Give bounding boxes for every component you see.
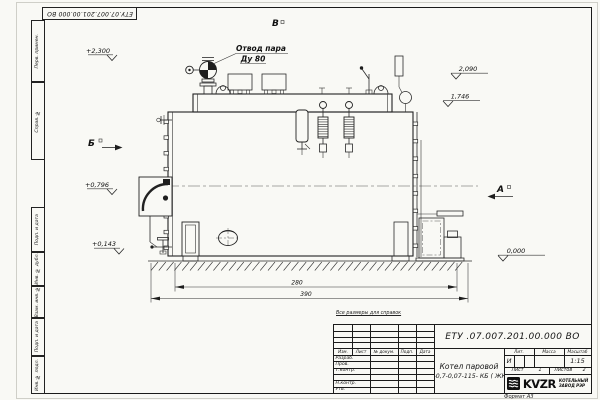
steam-outlet-dn: Ду 80 [240,55,266,64]
elevation-mark-0796: +0,796 [85,181,117,195]
svg-text:+0,796: +0,796 [85,181,109,189]
manhole [216,228,240,248]
tb-header-izm: Изм. [334,348,352,355]
svg-text:А: А [496,185,504,195]
blower-unit [416,211,464,261]
exhaust-stack [395,56,412,112]
tb-sheet-value: 1 [538,368,541,373]
elevation-mark-0143: +0,143 [92,240,124,254]
title-block: ЕТУ .07.007.201.00.000 ВО Изм. Лист № до… [333,324,592,394]
tb-designation: ЕТУ .07.007.201.00.000 ВО [434,325,591,348]
elevation-mark-1746: 1,746 [443,93,480,107]
svg-text:+0,143: +0,143 [92,240,116,248]
tb-sheet-cell: Лист 1 [504,367,549,374]
svg-text:390: 390 [300,291,312,298]
ground-line [148,261,472,271]
kvzr-logo-text: KVZR [523,377,556,391]
drum-hatch-1 [228,74,252,94]
lifting-lug-right [374,86,388,95]
svg-text:В: В [272,19,279,29]
tb-header-doc: № докум. [370,348,398,355]
elevation-mark-2090: 2,090 [451,65,488,79]
svg-text:+2,300: +2,300 [86,47,110,55]
tb-lit-value: И [504,355,514,367]
view-marker-a: А [488,185,514,199]
format-note: Формат А3 [504,394,534,400]
tb-product-name-line1: Котел паровой [440,362,499,371]
kvzr-caption-line2: ЗАВОД РЭР [559,383,585,388]
drum-hatch-2 [262,74,286,94]
view-marker-b: Б [88,139,123,150]
tb-lit-label: Лит. [504,348,534,355]
dimension-390: 390 [151,263,468,303]
dimension-280: 280 [175,263,457,292]
boiler-body [164,112,421,257]
tb-header-date: Дата [416,348,434,355]
tb-header-sign: Подп. [398,348,416,355]
steam-drum [193,94,392,112]
svg-text:Б: Б [88,139,95,149]
elevation-mark-0000: 0,000 [498,247,545,261]
steam-outlet-text: Отвод пара [236,44,286,53]
steam-outlet-label: Отвод пара Ду 80 [213,44,288,64]
tb-row-utv: Утв. [334,387,370,393]
kvzr-logo-caption: КОТЕЛЬНЫЙ ЗАВОД РЭР [559,379,588,389]
kvzr-logo-icon [507,377,520,390]
svg-text:1,746: 1,746 [451,93,470,101]
svg-text:0,000: 0,000 [507,247,526,255]
svg-text:2,090: 2,090 [459,65,478,73]
tb-product-name-line2: Е -0,7-0,07-115- КБ ( ЖК ) [434,373,504,380]
tb-sheet-label: Лист [511,368,523,373]
tb-row-prov: Пров. [334,361,370,367]
lever-safety-valve [360,66,372,94]
tb-sheets-label: Листов [554,368,572,373]
reference-note: Все размеры для справок [336,311,401,316]
support-leg-right [392,222,409,261]
elevation-mark-2300: +2,300 [86,47,117,61]
drawing-sheet: Перв. примен. Справ. № Подп. и дата Инв.… [0,0,600,400]
view-marker-v: В [272,19,284,29]
tb-sheets-cell: Листов 2 [549,367,591,374]
level-gauge-set [296,88,354,158]
tb-mass-label: Масса [534,348,564,355]
tb-scale-value: 1:15 [564,355,591,367]
support-leg-left [182,222,199,261]
tb-product-name: Котел паровой Е -0,7-0,07-115- КБ ( ЖК ) [434,348,504,393]
tb-sheets-value: 2 [583,368,586,373]
tb-header-list: Лист [352,348,370,355]
steam-outlet-valve [186,58,217,95]
burner-assembly [139,177,172,254]
tb-row-nkontr: Н.контр. [334,380,370,386]
tb-scale-label: Масштаб [564,348,591,355]
svg-text:280: 280 [291,280,303,287]
tb-logo-cell: KVZR КОТЕЛЬНЫЙ ЗАВОД РЭР [504,374,591,393]
